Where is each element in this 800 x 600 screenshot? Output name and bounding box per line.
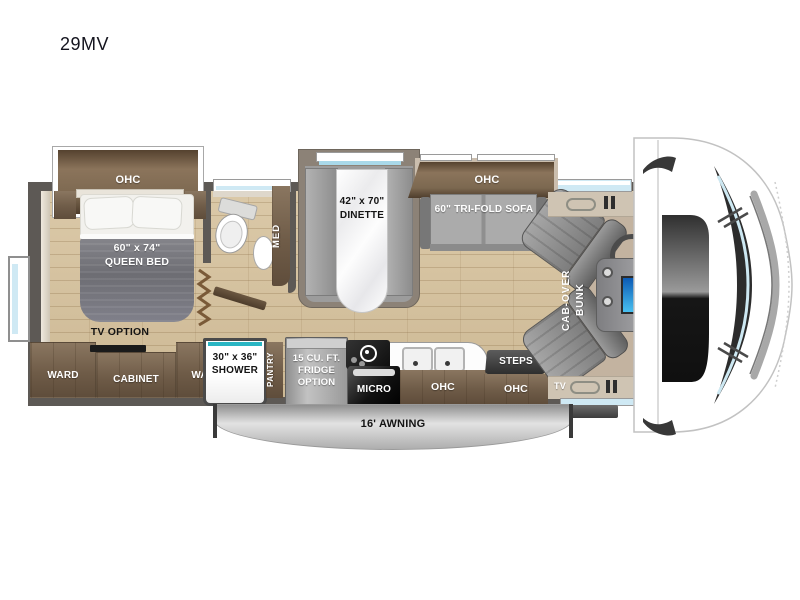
bunk-line-2: BUNK — [574, 250, 588, 350]
micro-label: MICRO — [348, 384, 400, 396]
sofa-label: 60" TRI-FOLD SOFA — [422, 204, 546, 216]
bedroom-tv — [90, 345, 146, 352]
dinette-window-glass — [319, 161, 401, 165]
sink-basin-right — [434, 347, 465, 372]
ward-left-label: WARD — [30, 370, 96, 382]
pantry-label: PANTRY — [266, 344, 283, 396]
bed-name-label: QUEEN BED — [77, 256, 197, 268]
shower-name-label: SHOWER — [203, 365, 267, 377]
blanket-fold — [80, 234, 194, 239]
rear-window-glass — [12, 264, 18, 334]
cooktop-knob-1 — [351, 357, 357, 363]
cab-tv-label: TV — [551, 381, 569, 391]
pillow-left — [83, 196, 135, 231]
door-hinge-bottom-1 — [606, 380, 610, 393]
faucet-left — [413, 361, 418, 366]
dinette-bench-left — [305, 168, 338, 296]
entry-ohc-label: OHC — [484, 383, 548, 395]
shower-teal-strip — [208, 342, 262, 346]
burner-center — [365, 350, 369, 354]
door-hinge-top-2 — [611, 196, 615, 209]
cabinet-label: CABINET — [96, 374, 176, 386]
bunk-line-1: CAB-OVER — [561, 269, 572, 330]
faucet-right — [445, 361, 450, 366]
door-hinge-bottom-2 — [613, 380, 617, 393]
fridge-label-2: FRIDGE — [285, 366, 348, 377]
front-cap — [628, 132, 800, 444]
page-title: 29MV — [60, 34, 109, 55]
sofa-slide-roof-right — [477, 154, 555, 161]
sofa-ohc-label: OHC — [420, 174, 554, 187]
bedroom-ladder — [196, 268, 212, 326]
sink-basin-left — [402, 347, 433, 372]
tv-option-label: TV OPTION — [60, 326, 180, 338]
dinette-size-label: 42" x 70" — [327, 196, 397, 208]
dash-knob-top — [602, 267, 613, 278]
windshield — [662, 215, 709, 382]
fridge-label-3: OPTION — [285, 378, 348, 389]
door-handle-bottom — [570, 381, 600, 394]
fridge-top-flap — [287, 339, 346, 349]
sofa-slide-roof-left — [420, 154, 472, 161]
dinette-name-label: DINETTE — [327, 210, 397, 222]
shower-size-label: 30" x 36" — [203, 352, 267, 364]
med-label: MED — [272, 206, 290, 266]
fridge-label-1: 15 CU. FT. — [285, 354, 348, 365]
door-handle-top — [566, 198, 596, 211]
nightstand-left — [54, 191, 76, 219]
door-hinge-top-1 — [604, 196, 608, 209]
bed-ohc-label: OHC — [58, 174, 198, 187]
dinette-table — [336, 169, 388, 313]
dash-knob-bottom — [602, 296, 613, 307]
microwave-handle — [353, 369, 395, 376]
awning-label: 16' AWNING — [214, 418, 572, 431]
floor-plan: 29MV OHC 60" x 74" QUEEN BED MED TV OPT — [0, 0, 800, 600]
pillow-right — [131, 196, 183, 231]
dinette-bench-right — [385, 168, 413, 296]
kitchen-ohc-label: OHC — [400, 381, 486, 393]
cab-over-bunk-label: CAB-OVER BUNK — [560, 250, 602, 350]
bed-size-label: 60" x 74" — [77, 242, 197, 254]
burner — [360, 345, 377, 362]
